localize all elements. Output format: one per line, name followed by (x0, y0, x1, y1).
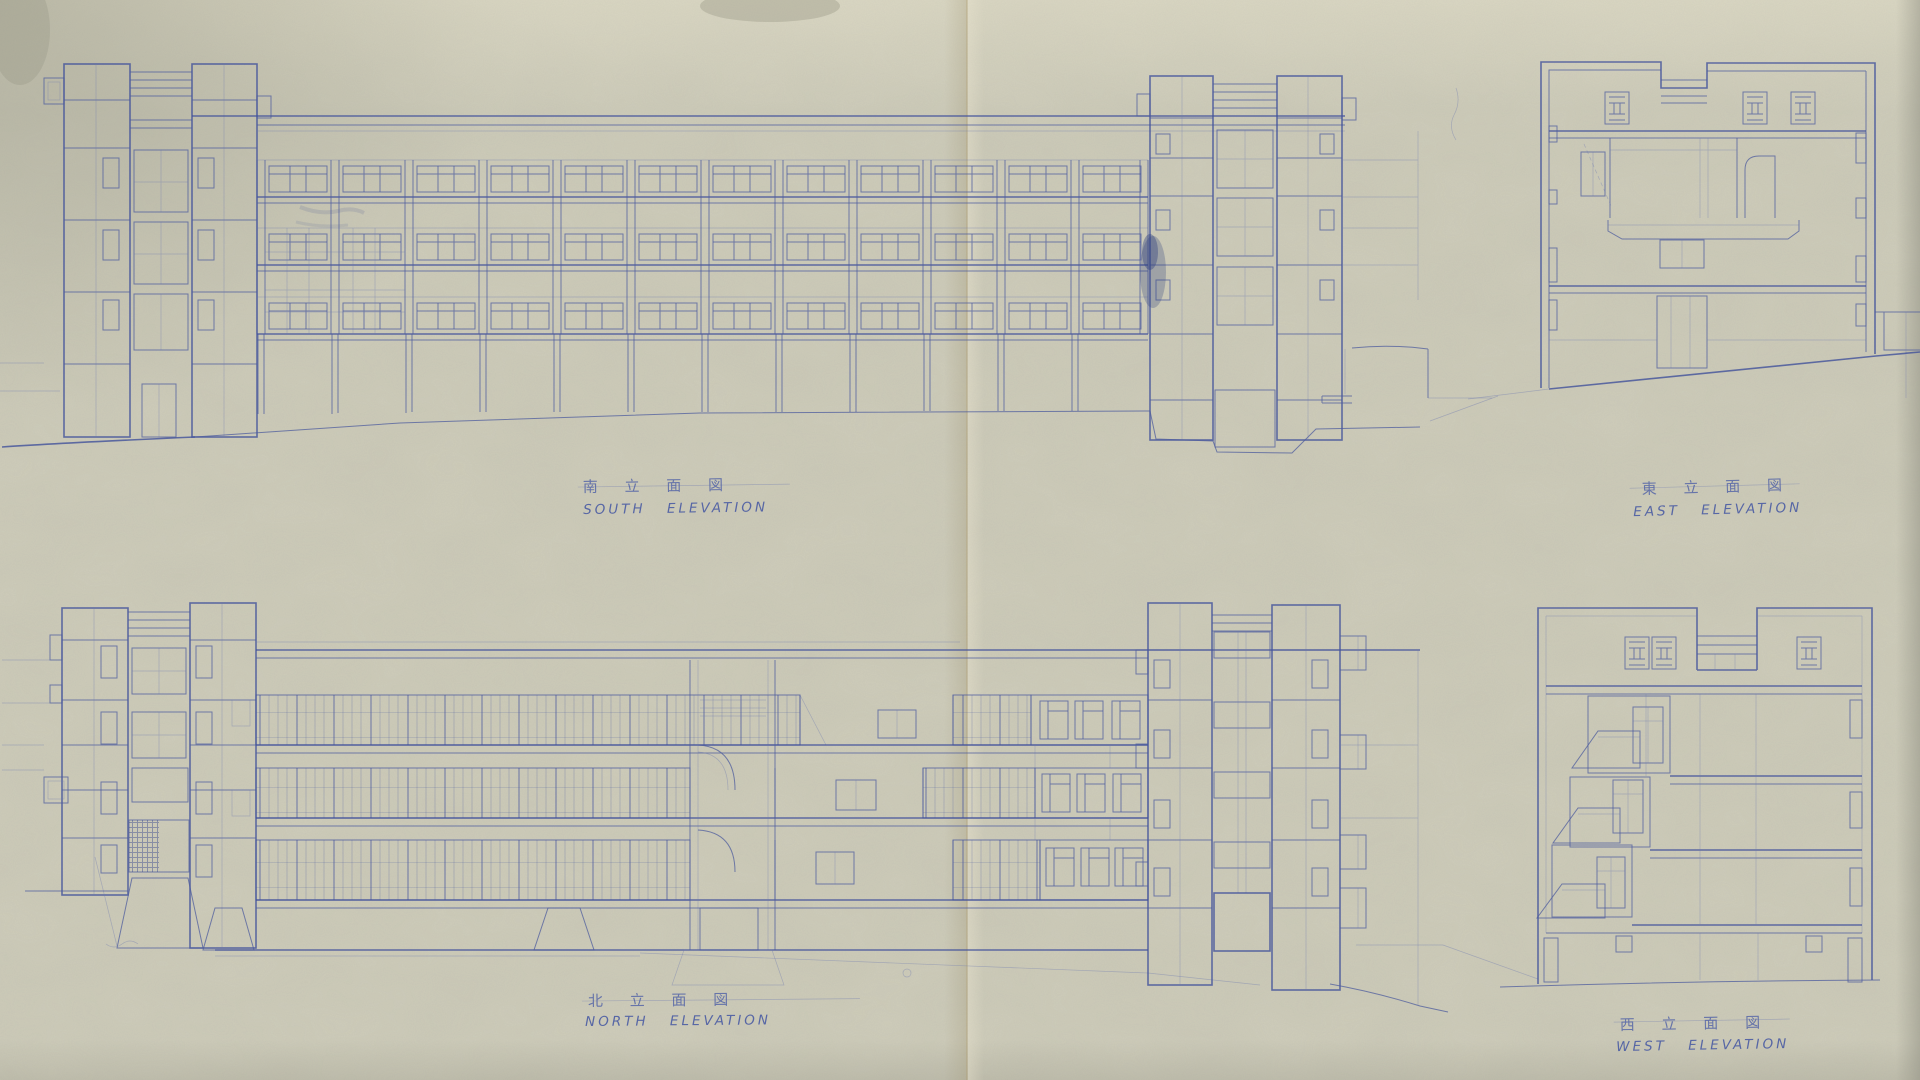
west-elevation-label-japanese: 西 立 面 図 (1620, 1013, 1772, 1034)
north-elevation-label-english: NORTH ELEVATION (585, 1012, 771, 1030)
south-elevation-label-english: SOUTH ELEVATION (583, 499, 768, 518)
blueprint-sheet: 南 立 面 図 SOUTH ELEVATION 東 立 面 図 EAST ELE… (0, 0, 1920, 1080)
south-elevation-label-japanese: 南 立 面 図 (583, 476, 735, 496)
north-elevation-label-japanese: 北 立 面 図 (588, 991, 739, 1010)
west-elevation-label-english: WEST ELEVATION (1616, 1036, 1789, 1055)
paper-background (0, 0, 1920, 1080)
